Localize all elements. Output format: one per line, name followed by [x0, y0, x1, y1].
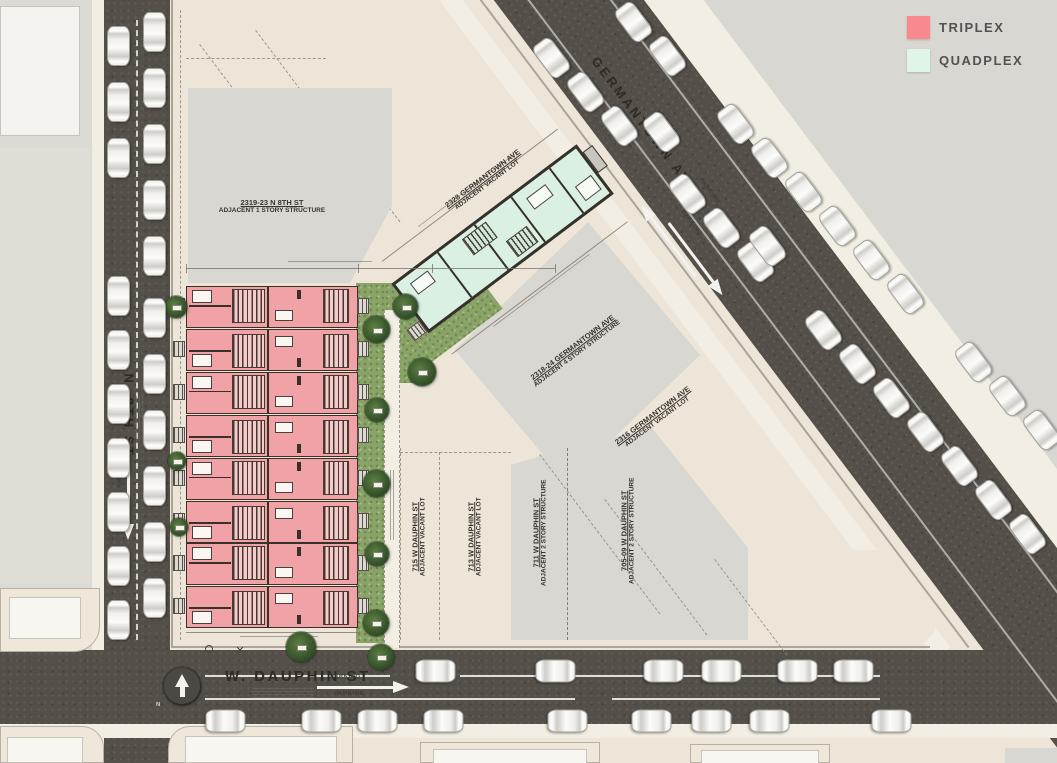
parcel-label-n8th-adjacent: 2319-23 N 8TH ST ADJACENT 1 STORY STRUCT…	[192, 198, 352, 216]
triplex-front-steps	[357, 298, 369, 314]
parcel-line-dashed	[400, 452, 511, 453]
triplex-rear-steps	[173, 555, 185, 571]
tree-icon	[363, 610, 389, 636]
triplex-row	[186, 415, 358, 457]
legend: TRIPLEX QUADPLEX	[907, 16, 1023, 82]
parcel-line-dashed	[400, 448, 401, 640]
triplex-row	[186, 458, 358, 500]
triplex-rear-steps	[173, 384, 185, 400]
car-icon	[107, 600, 130, 640]
north-arrow-icon	[164, 668, 200, 704]
dimension-line	[186, 268, 556, 269]
triplex-rear-steps	[173, 470, 185, 486]
utility-symbol	[237, 647, 243, 653]
property-line-dashed	[199, 44, 314, 196]
car-icon	[143, 124, 166, 164]
car-icon	[143, 12, 166, 52]
parcel-label-dauphin-713: 713 W DAUPHIN ST ADJACENT VACANT LOT	[466, 477, 484, 597]
tree-icon	[365, 542, 389, 566]
tree-icon	[363, 316, 390, 343]
triplex-row	[186, 372, 358, 414]
micro-text	[288, 261, 372, 264]
parcel-line-dashed	[439, 452, 440, 640]
car-icon	[143, 410, 166, 450]
car-icon	[778, 660, 818, 683]
parcel-label-dauphin-711: 711 W DAUPHIN ST ADJACENT 2 STORY STRUCT…	[531, 473, 549, 593]
parcel-label-dauphin-715: 715 W DAUPHIN ST ADJACENT VACANT LOT	[410, 477, 428, 597]
car-icon	[424, 710, 464, 733]
car-icon	[143, 578, 166, 618]
legend-swatch-triplex	[907, 16, 930, 39]
car-icon	[143, 466, 166, 506]
parcel-line-dashed	[714, 559, 787, 655]
car-icon	[143, 522, 166, 562]
parcel-label-dauphin-705-09: 705-09 W DAUPHIN ST ADJACENT 2 STORY STR…	[619, 471, 637, 591]
tree-icon	[363, 470, 390, 497]
dimension-tick	[358, 264, 359, 273]
triplex-front-steps	[357, 513, 369, 529]
triplex-rear-steps	[173, 427, 185, 443]
car-icon	[834, 660, 874, 683]
triplex-row	[186, 286, 358, 328]
dimension-line	[186, 632, 360, 633]
car-icon	[302, 710, 342, 733]
car-icon	[107, 546, 130, 586]
west-lot	[0, 148, 90, 584]
tree-icon	[170, 518, 188, 536]
dimension-tick	[186, 264, 187, 273]
utility-symbol	[205, 645, 213, 653]
car-icon	[143, 236, 166, 276]
building-below-dauphin-c	[690, 744, 830, 763]
legend-item-quadplex: QUADPLEX	[907, 49, 1023, 72]
legend-swatch-quadplex	[907, 49, 930, 72]
corner-building-se	[1005, 748, 1057, 763]
property-line-dashed	[255, 30, 400, 222]
parcel-line-dashed	[567, 448, 568, 640]
car-icon	[692, 710, 732, 733]
car-icon	[107, 82, 130, 122]
car-icon	[702, 660, 742, 683]
car-icon	[416, 660, 456, 683]
car-icon	[872, 710, 912, 733]
lane-marking	[205, 698, 575, 700]
car-icon	[143, 68, 166, 108]
tree-icon	[165, 296, 187, 318]
parcel-label-germantown-2316: 2316 GERMANTOWN AVE ADJACENT VACANT LOT	[586, 364, 724, 474]
car-icon	[358, 710, 398, 733]
corner-building-sw	[0, 588, 100, 652]
car-icon	[206, 710, 246, 733]
tree-icon	[368, 644, 394, 670]
car-icon	[107, 330, 130, 370]
tree-icon	[393, 294, 418, 319]
tree-icon	[168, 452, 186, 470]
car-icon	[750, 710, 790, 733]
lane-marking	[612, 698, 880, 700]
legend-item-triplex: TRIPLEX	[907, 16, 1023, 39]
car-icon	[548, 710, 588, 733]
building-below-dauphin-b	[420, 742, 600, 763]
triplex-front-steps	[357, 341, 369, 357]
lane-marking-8th	[136, 20, 138, 640]
legend-label-quadplex: QUADPLEX	[939, 53, 1023, 68]
car-icon	[107, 138, 130, 178]
property-line-dashed	[186, 58, 326, 59]
curb-8th	[171, 0, 173, 648]
tree-icon	[365, 398, 389, 422]
west-sidewalk	[92, 0, 104, 763]
car-icon	[107, 26, 130, 66]
triplex-rear-steps	[173, 341, 185, 357]
triplex-front-steps	[357, 427, 369, 443]
triplex-row	[186, 329, 358, 371]
building-below-dauphin-west	[0, 726, 104, 763]
car-icon	[143, 354, 166, 394]
car-icon	[107, 276, 130, 316]
north-marker-label: N	[156, 702, 161, 708]
dimension-tick	[555, 264, 556, 273]
west-building-roof	[0, 6, 80, 136]
triplex-row	[186, 501, 358, 543]
tree-icon	[408, 358, 436, 386]
one-way-arrow-east	[317, 681, 411, 693]
triplex-rear-steps	[173, 598, 185, 614]
triplex-row	[186, 543, 358, 585]
car-icon	[107, 492, 130, 532]
micro-text	[390, 470, 396, 540]
parking-label: PARKING	[330, 674, 361, 680]
dimension-tick	[432, 264, 433, 273]
triplex-front-steps	[357, 384, 369, 400]
car-icon	[143, 180, 166, 220]
car-icon	[107, 384, 130, 424]
dauphin-street-subtext	[252, 688, 314, 698]
property-line-dashed	[180, 10, 181, 640]
car-icon	[143, 298, 166, 338]
car-icon	[107, 438, 130, 478]
site-plan: W. DAUPHIN ST N. 8TH ST GERMANTOWN AVE P…	[0, 0, 1057, 763]
car-icon	[632, 710, 672, 733]
parcel-label-germantown-2318-24: 2318-24 GERMANTOWN AVE ADJACENT 4 STORY …	[506, 296, 644, 406]
car-icon	[536, 660, 576, 683]
triplex-row	[186, 586, 358, 628]
tree-icon	[286, 632, 316, 662]
parcel-line-dashed	[539, 454, 660, 614]
car-icon	[644, 660, 684, 683]
legend-label-triplex: TRIPLEX	[939, 20, 1004, 35]
